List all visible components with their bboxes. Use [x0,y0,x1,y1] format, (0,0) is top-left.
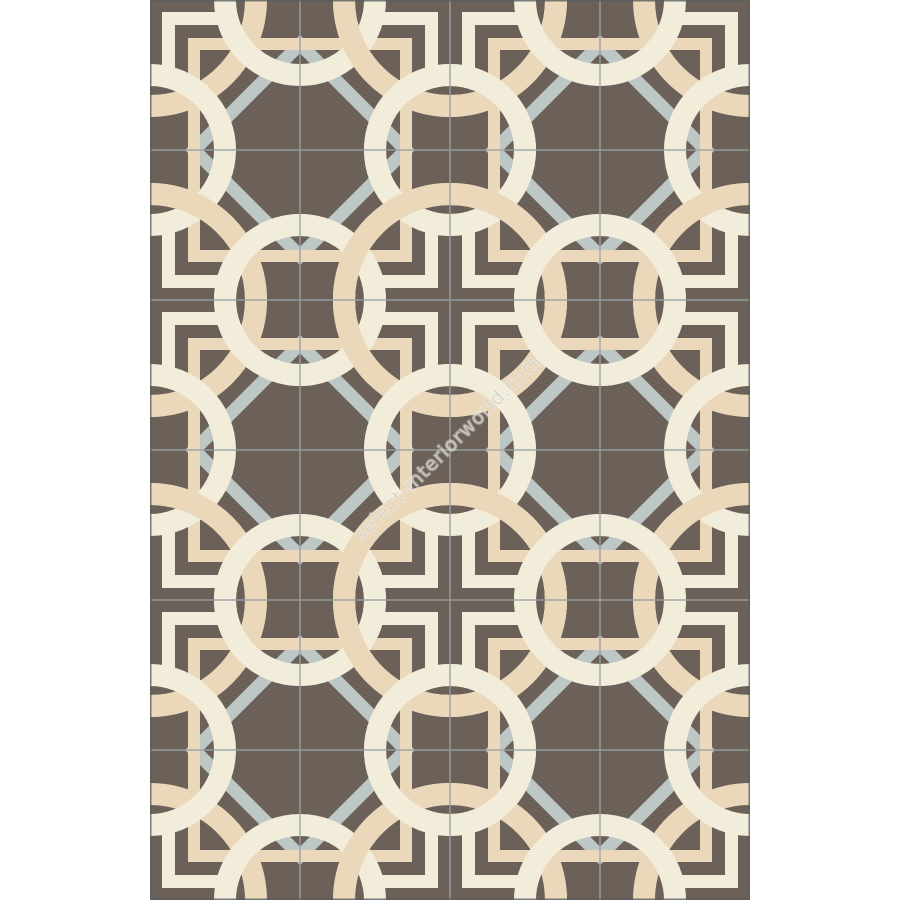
tile-panel: select-interiorworld.com [150,0,750,900]
tile-pattern-svg: select-interiorworld.com [150,0,750,900]
page-background: select-interiorworld.com [0,0,900,900]
